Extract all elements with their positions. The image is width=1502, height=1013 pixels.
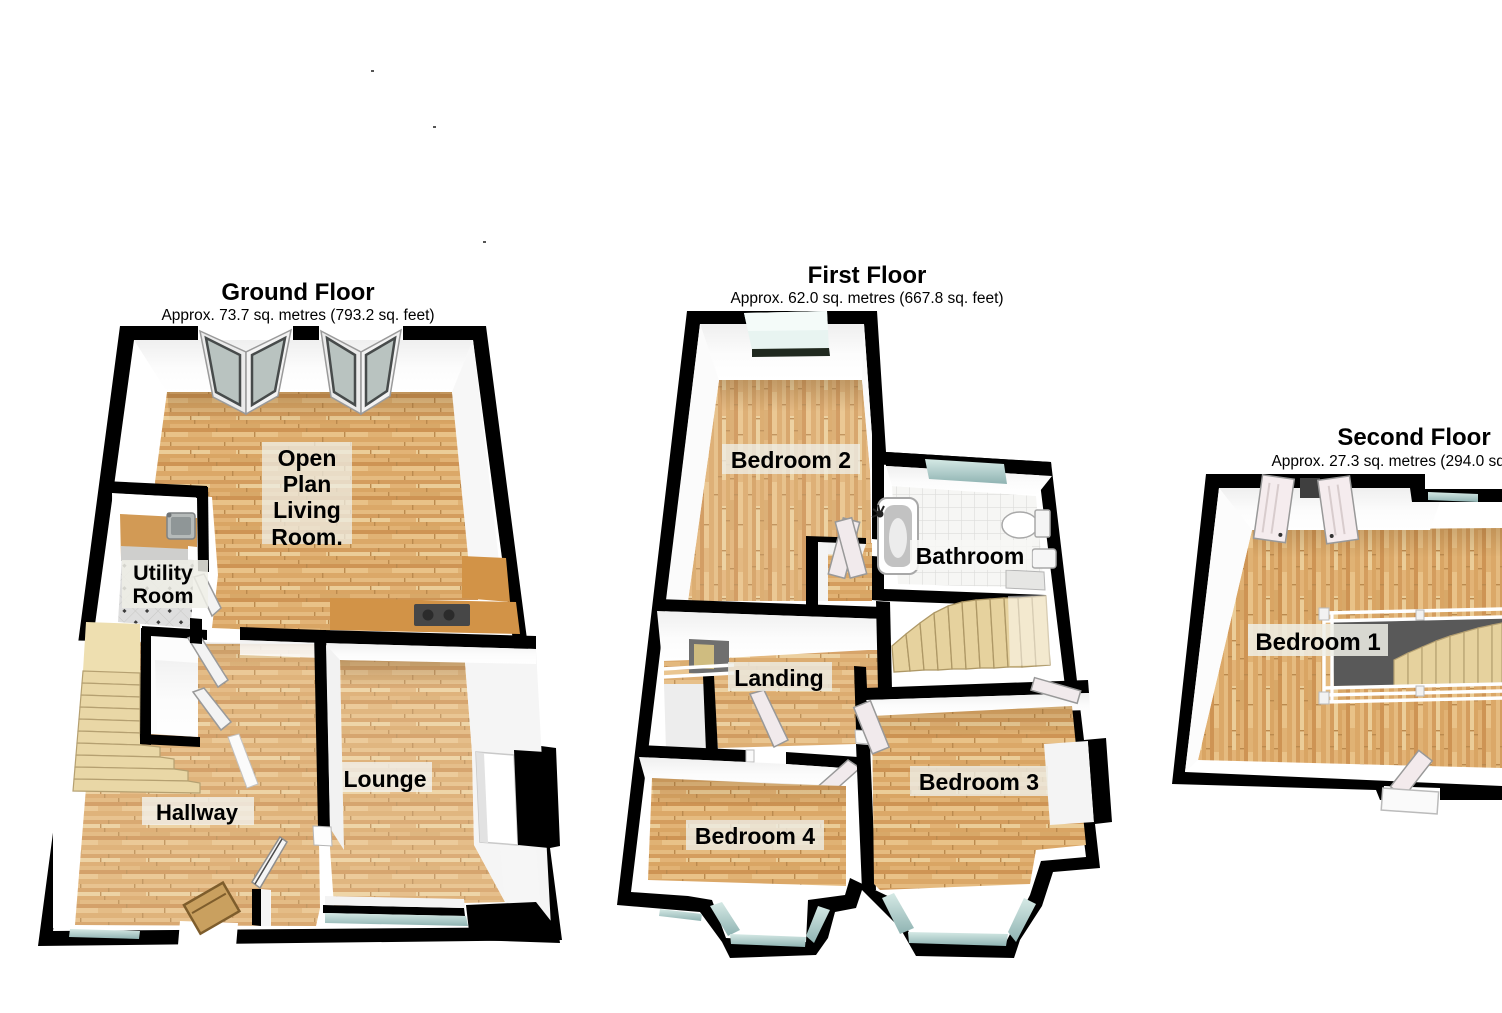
svg-text:Approx. 73.7 sq. metres (793.2: Approx. 73.7 sq. metres (793.2 sq. feet) <box>161 307 434 324</box>
svg-text:Open: Open <box>278 445 337 471</box>
svg-text:Lounge: Lounge <box>343 766 426 792</box>
svg-text:Bedroom 4: Bedroom 4 <box>695 823 815 849</box>
svg-text:Bedroom 2: Bedroom 2 <box>731 447 851 473</box>
svg-text:Approx. 27.3 sq. metres (294.0: Approx. 27.3 sq. metres (294.0 sq. feet) <box>1271 453 1502 470</box>
svg-text:Plan: Plan <box>283 471 332 497</box>
svg-text:Bedroom 1: Bedroom 1 <box>1255 629 1380 656</box>
svg-text:Second Floor: Second Floor <box>1337 424 1490 451</box>
svg-text:Approx. 62.0 sq. metres (667.8: Approx. 62.0 sq. metres (667.8 sq. feet) <box>730 290 1003 307</box>
svg-text:Bedroom 3: Bedroom 3 <box>919 769 1039 795</box>
svg-text:First Floor: First Floor <box>808 262 927 289</box>
svg-text:Living: Living <box>273 497 341 523</box>
svg-text:Room.: Room. <box>271 524 343 550</box>
svg-text:Room: Room <box>133 584 194 608</box>
svg-text:Landing: Landing <box>734 665 823 691</box>
svg-text:Hallway: Hallway <box>156 800 239 825</box>
svg-text:Bathroom: Bathroom <box>916 543 1025 569</box>
svg-text:Utility: Utility <box>133 561 193 585</box>
svg-text:Ground Floor: Ground Floor <box>221 279 374 306</box>
